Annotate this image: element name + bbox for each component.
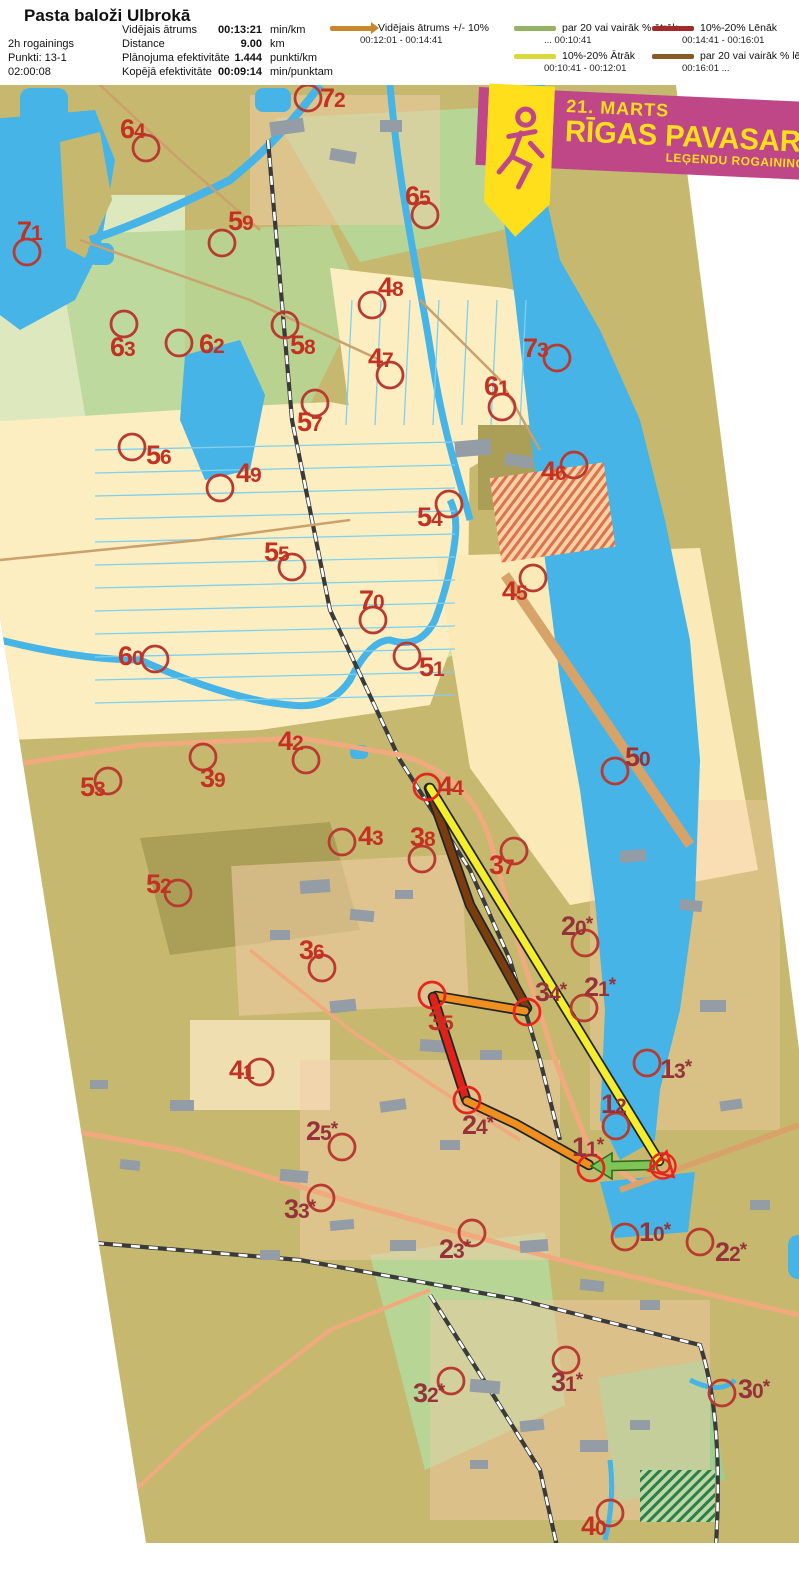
legend-swatch-icon <box>330 26 372 31</box>
building <box>580 1440 608 1452</box>
page-title: Pasta baloži Ulbrokā <box>24 6 190 26</box>
legend-range: 00:12:01 - 00:14:41 <box>360 35 489 46</box>
building <box>260 1250 280 1260</box>
stat-unit-1: km <box>270 38 285 50</box>
building <box>390 1240 416 1251</box>
stat-value-1: 9.00 <box>196 38 262 50</box>
legend-label: 10%-20% Lēnāk <box>700 22 777 34</box>
building <box>620 849 647 863</box>
stat-value-0: 00:13:21 <box>196 24 262 36</box>
building <box>395 890 413 899</box>
building <box>300 879 331 894</box>
building <box>750 1200 770 1210</box>
stat-unit-0: min/km <box>270 24 305 36</box>
building <box>480 1050 502 1060</box>
building <box>454 438 491 457</box>
building <box>470 1460 488 1469</box>
legend-item-3: 10%-20% Lēnāk00:14:41 - 00:16:01 <box>652 22 777 46</box>
building <box>280 1169 309 1183</box>
building <box>380 120 402 132</box>
building <box>90 1080 108 1089</box>
building <box>440 1140 460 1150</box>
stat-label-1: Distance <box>122 38 165 50</box>
stat-unit-3: min/punktam <box>270 66 333 78</box>
stat-value-3: 00:09:14 <box>196 66 262 78</box>
legend-swatch-icon <box>514 54 556 59</box>
building <box>630 1420 650 1430</box>
legend-item-4: par 20 vai vairāk % lēnāk00:16:01 ... <box>652 50 799 74</box>
legend-range: 00:16:01 ... <box>682 63 799 74</box>
info-row-0: 2h rogainings <box>8 38 74 50</box>
building <box>640 1300 660 1310</box>
event-banner: 21. MARTS RĪGAS PAVASARA LEĢENDU ROGAINI… <box>475 87 799 181</box>
legend-swatch-icon <box>652 26 694 31</box>
stat-value-2: 1.444 <box>196 52 262 64</box>
legend-label: par 20 vai vairāk % lēnāk <box>700 50 799 62</box>
runner-shield-icon <box>482 83 555 246</box>
building <box>469 1379 500 1395</box>
orienteering-map: 7264715965486362584773615756494654554570… <box>0 0 799 1590</box>
stat-unit-2: punkti/km <box>270 52 317 64</box>
legend-item-2: 10%-20% Ātrāk00:10:41 - 00:12:01 <box>514 50 635 74</box>
legend-swatch-icon <box>514 26 556 31</box>
legend-label: Vidējais ātrums +/- 10% <box>378 22 489 34</box>
building <box>700 1000 726 1012</box>
results-header: Pasta baloži Ulbrokā 2h rogainingsPunkti… <box>0 0 799 85</box>
building <box>270 930 290 940</box>
info-row-2: 02:00:08 <box>8 66 51 78</box>
legend-range: 00:10:41 - 00:12:01 <box>544 63 635 74</box>
stat-label-0: Vidējais ātrums <box>122 24 197 36</box>
legend-range: 00:14:41 - 00:16:01 <box>682 35 777 46</box>
building <box>170 1100 194 1111</box>
building <box>120 1159 141 1171</box>
building <box>330 1219 355 1231</box>
legend-item-0: Vidējais ātrums +/- 10%00:12:01 - 00:14:… <box>330 22 489 46</box>
map-terrain <box>0 80 799 1560</box>
info-row-1: Punkti: 13-1 <box>8 52 67 64</box>
legend-swatch-icon <box>652 54 694 59</box>
legend-label: 10%-20% Ātrāk <box>562 50 635 62</box>
building <box>520 1239 549 1253</box>
building <box>679 899 702 912</box>
